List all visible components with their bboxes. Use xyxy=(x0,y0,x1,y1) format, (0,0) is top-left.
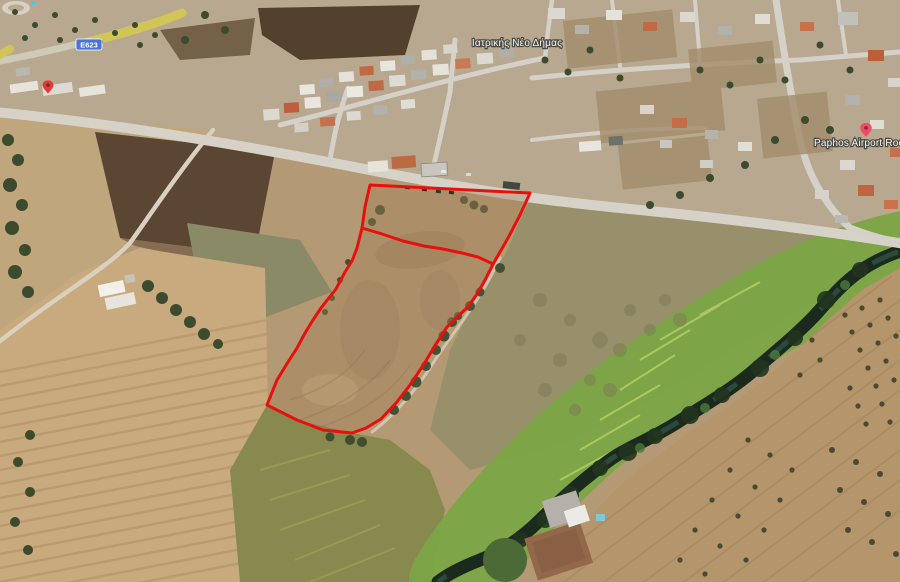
map-canvas[interactable]: E623 Ιατρικής Νέο Δήμας Paphos Airport R… xyxy=(0,0,900,582)
road-shield-e623: E623 xyxy=(76,39,102,50)
road-shield-text: E623 xyxy=(80,41,98,50)
place-label-greek[interactable]: Ιατρικής Νέο Δήμας xyxy=(472,37,562,49)
business-label[interactable]: Paphos Airport Room xyxy=(814,138,900,149)
satellite-map[interactable]: E623 Ιατρικής Νέο Δήμας Paphos Airport R… xyxy=(0,0,900,582)
